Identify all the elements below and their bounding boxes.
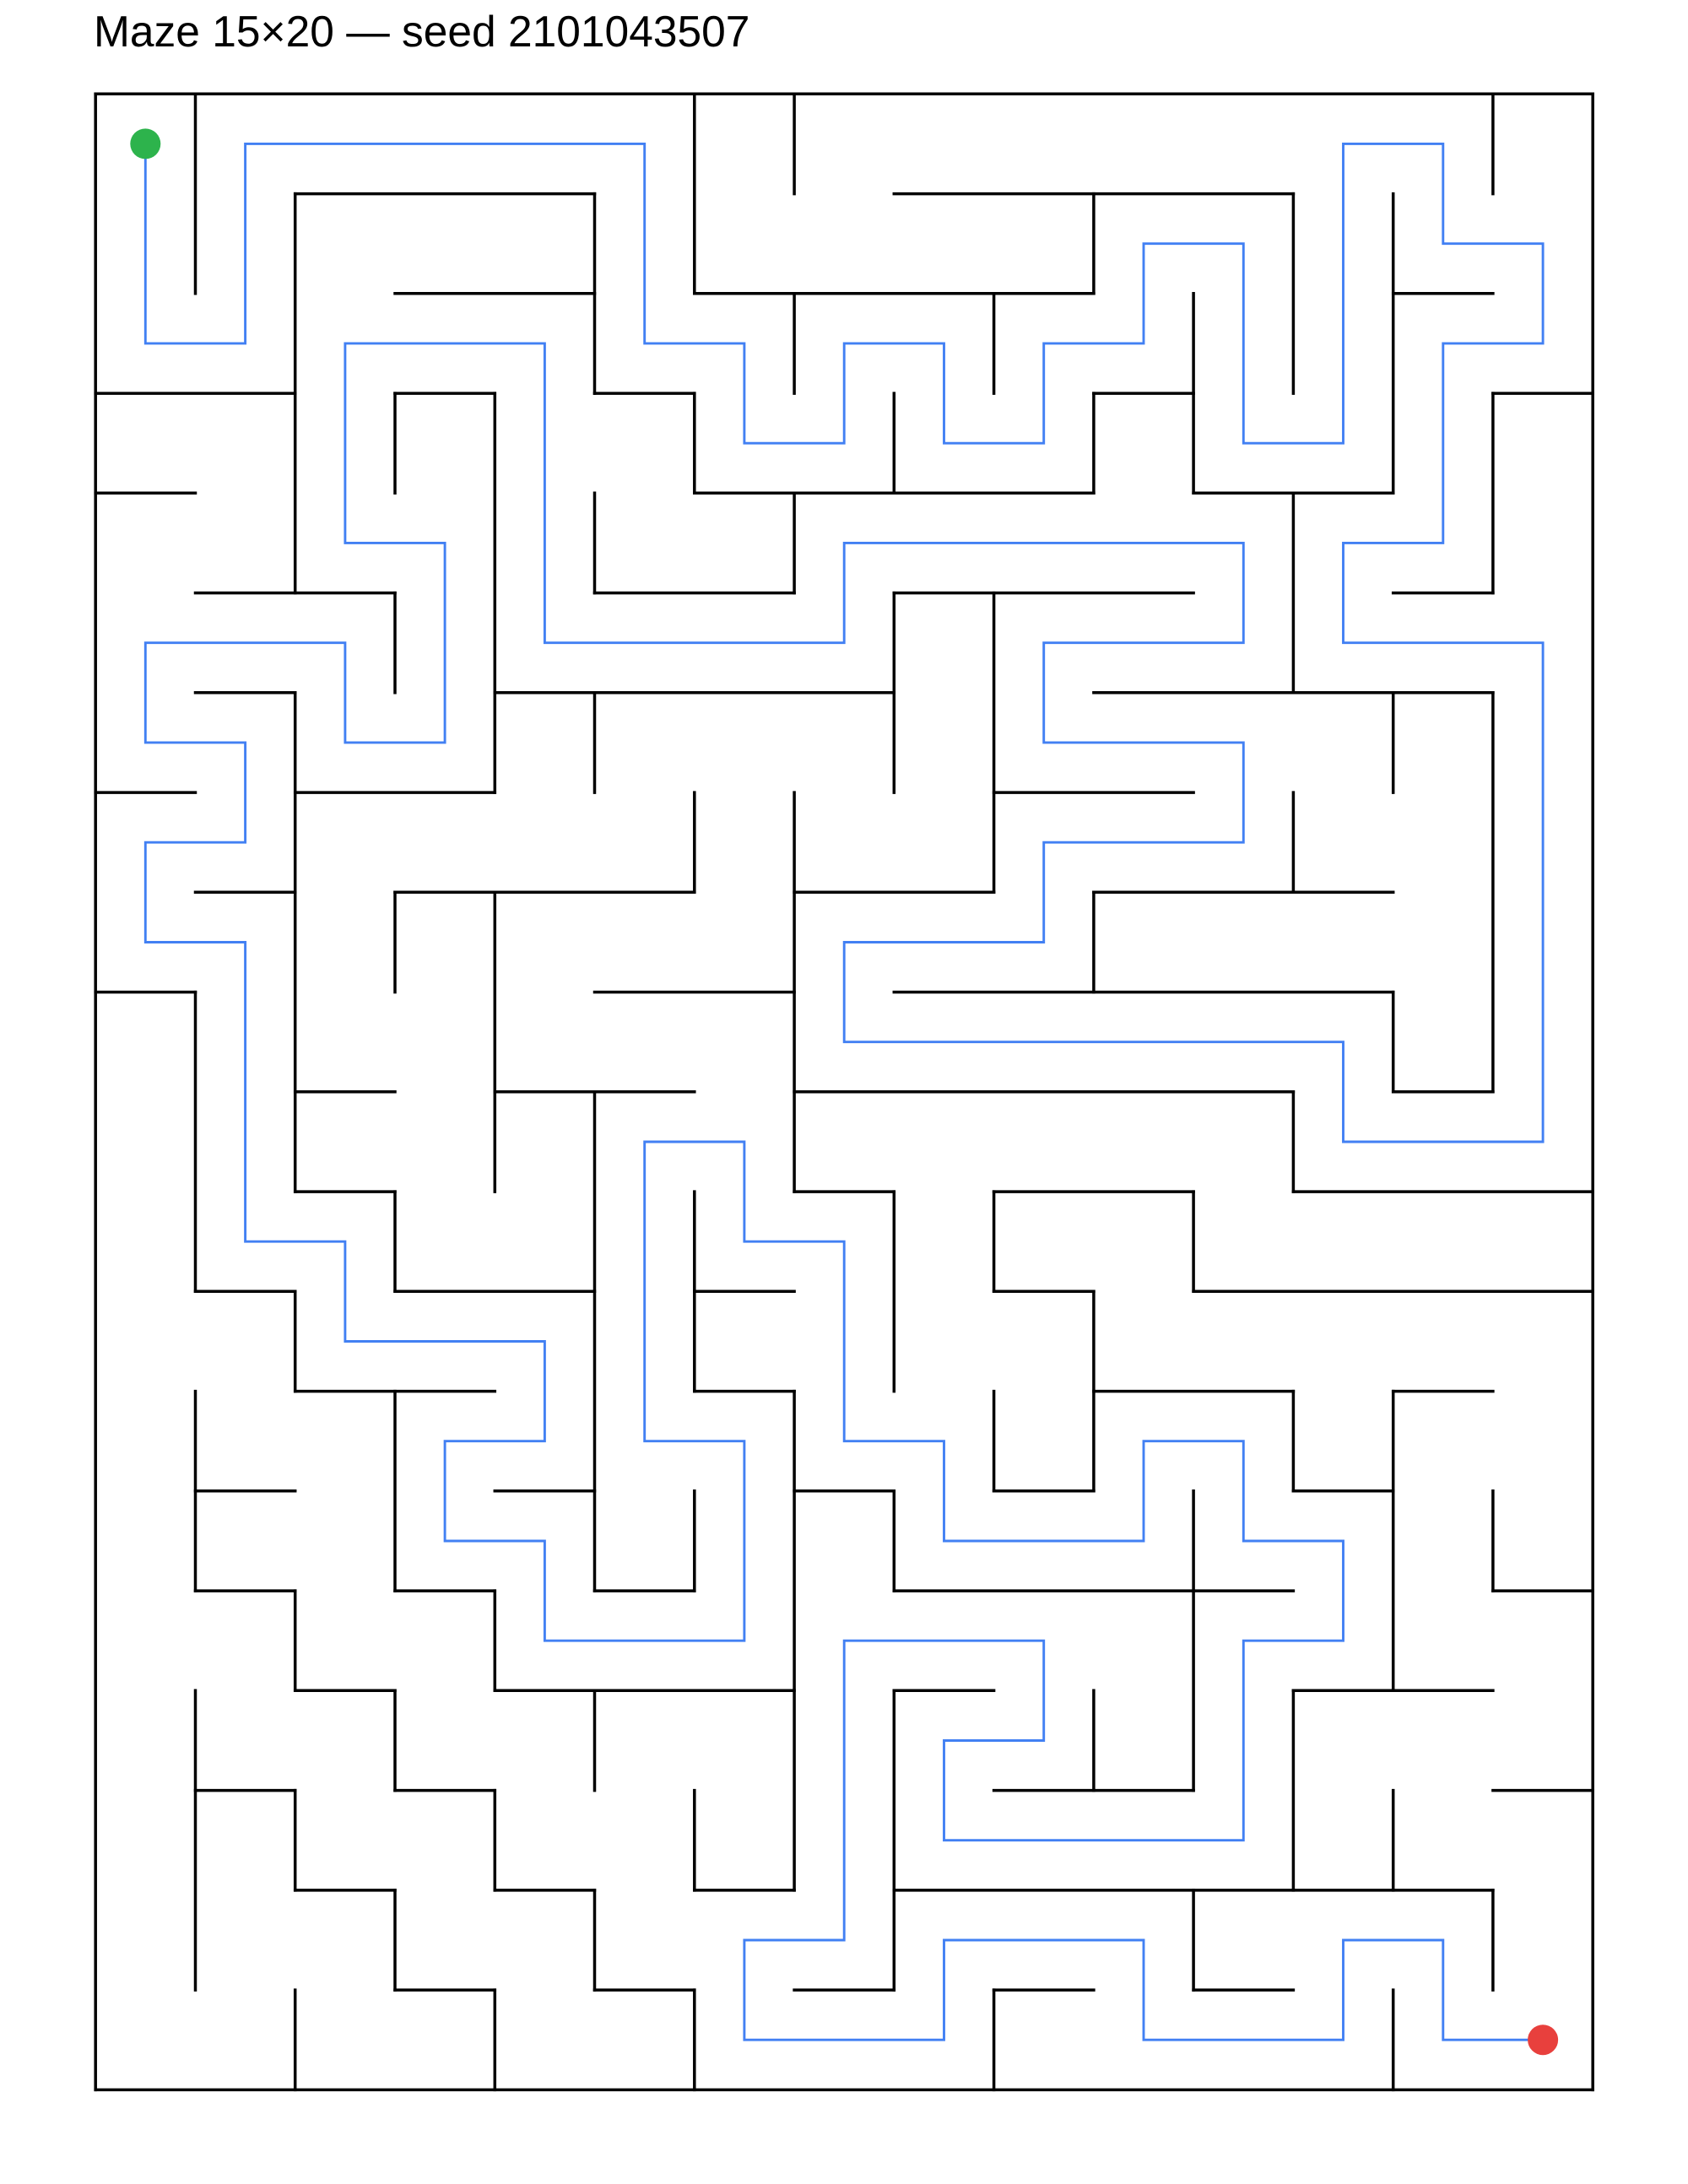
svg-text:Maze 15×20 — seed 2101043507: Maze 15×20 — seed 2101043507 bbox=[94, 7, 749, 56]
